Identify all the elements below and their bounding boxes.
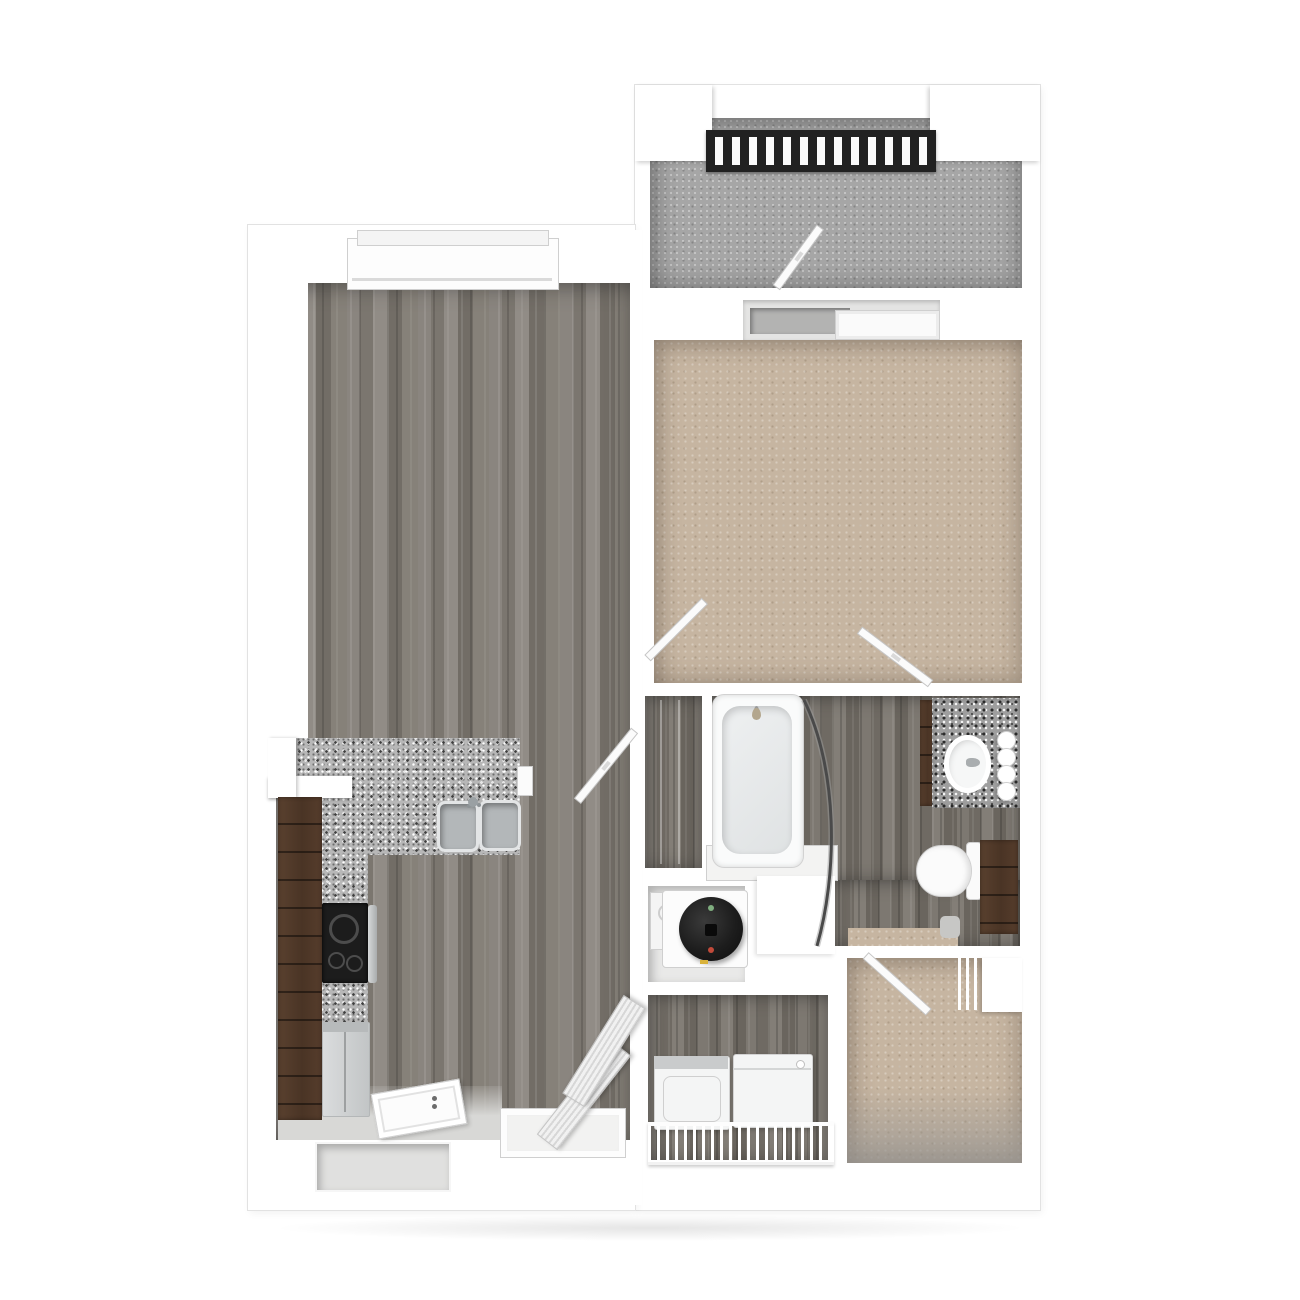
bath-hall-wall-block (757, 876, 835, 954)
wall-junction-patch (630, 230, 642, 1205)
linen-shelf-line-2 (678, 700, 680, 864)
kitchen-faucet-icon (468, 797, 478, 807)
bedroom-floor (654, 340, 1022, 683)
refrigerator-door-split (344, 1032, 346, 1112)
closet-corner-shelf (982, 958, 1022, 1012)
walk-in-closet-floor-shadow (847, 1088, 1022, 1163)
kitchen-half-wall-vertical (268, 738, 296, 798)
oven-handle (368, 905, 377, 983)
closet-wire-shelving (958, 958, 984, 1010)
laundry-wire-shelf (648, 1122, 834, 1165)
kitchen-sink-basin-left (437, 801, 479, 852)
exterior-wall-niche (315, 1142, 451, 1192)
balcony-corner-wall-left (635, 85, 712, 161)
water-heater-bottom-valve (708, 947, 714, 953)
stove-burner-small-right (346, 955, 363, 972)
floor-plan-canvas (0, 0, 1300, 1300)
linen-closet-floor (645, 696, 702, 868)
bath-mat (940, 916, 960, 938)
water-heater-center-fitting (705, 924, 717, 936)
vanity-light-bulb-4 (997, 782, 1016, 801)
bathtub-basin (722, 706, 792, 854)
stove-burner-large (329, 914, 359, 944)
plan-drop-shadow (270, 1215, 1030, 1241)
tub-faucet-icon (752, 708, 761, 720)
water-heater-pan-tag (700, 960, 708, 964)
water-heater-top-valve (708, 905, 714, 911)
living-room-window-glass-line (352, 278, 552, 281)
sliding-door-glass-panel (835, 310, 940, 340)
washer-top-panel (654, 1056, 728, 1069)
bath-storage-cabinet (980, 840, 1018, 934)
front-door-handle (432, 1096, 437, 1101)
balcony-railing (706, 130, 936, 172)
living-room-window-sill (357, 230, 549, 246)
refrigerator-top-panel (322, 1022, 368, 1032)
refrigerator (322, 1022, 370, 1117)
toilet-bowl (916, 845, 972, 897)
kitchen-sink-basin-right (479, 800, 521, 851)
linen-shelf-line-1 (660, 700, 662, 864)
balcony-corner-wall-right (930, 85, 1040, 161)
kitchen-tall-cabinets (278, 797, 322, 1120)
dryer-knob (796, 1060, 805, 1069)
kitchen-counter-end-cap (517, 766, 533, 796)
vanity-faucet-icon (966, 758, 980, 767)
washer-door-outline (663, 1076, 721, 1122)
stove-burner-small-left (328, 952, 345, 969)
